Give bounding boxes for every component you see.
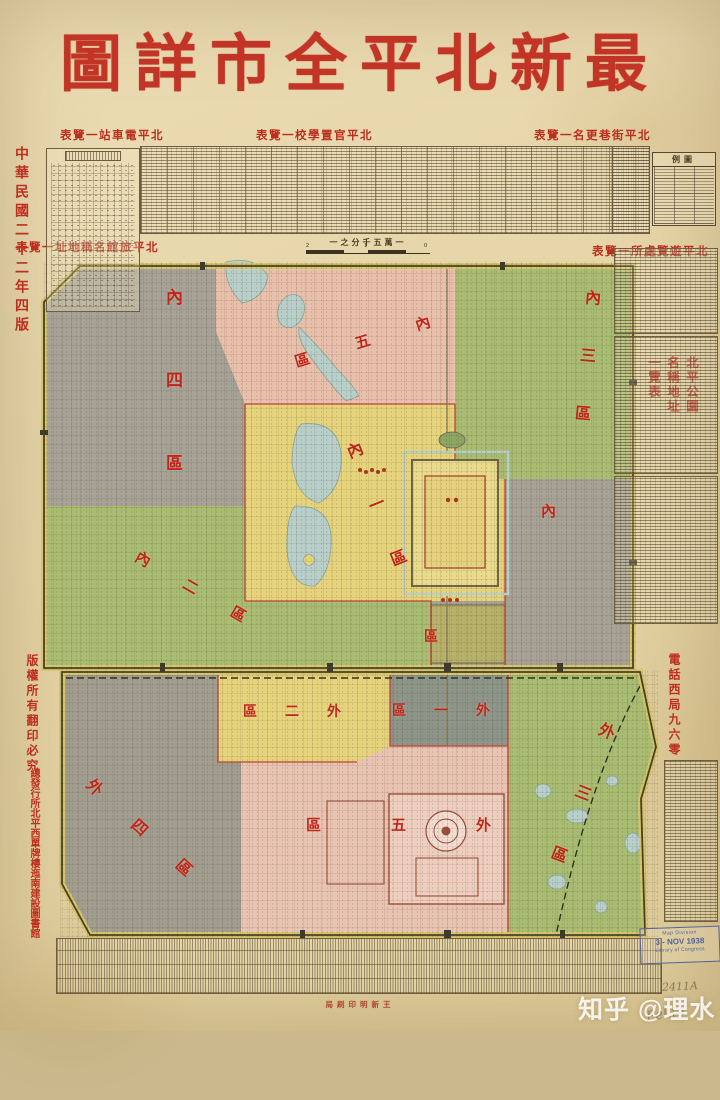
library-stamp: Map Division 3 - NOV 1938 Library of Con… [639, 926, 720, 965]
top-right-table [612, 146, 650, 234]
header-schools-table: 表覽一校學置官平北 [256, 127, 373, 143]
district-label-wai-5: 區五外 [306, 814, 561, 835]
edition-note: 中華民國二十二年四版 [12, 146, 32, 336]
scale-ratio-label: 一之分千五萬一 [306, 237, 430, 248]
scale-tick-0: 0 [424, 243, 427, 249]
zhihu-watermark: 知乎 @理水 [578, 990, 715, 1026]
district-label-nei-4: 內四區 [160, 288, 185, 537]
inset-key-map-drawing [51, 163, 135, 307]
inset-key-map-caption [65, 151, 121, 161]
scale-bar-segment [306, 250, 344, 253]
copyright-note: 版權所有翻印必究 [24, 654, 41, 774]
bottom-tables-strip [56, 938, 662, 994]
header-tram-stops-table: 表覽一站車電平北 [60, 127, 164, 143]
district-label-wai-2: 區二外 [243, 701, 369, 721]
legation-quarter-region [431, 605, 505, 663]
inset-key-map [46, 148, 140, 312]
forbidden-city-inner [425, 476, 485, 568]
district-label-wai-1: 區一外 [392, 700, 518, 720]
district-label-legation-partial: 區 [424, 626, 438, 646]
district-label-nei-6-partial: 內 [541, 500, 556, 521]
legend-symbol-grid [654, 166, 714, 224]
scale-bar [306, 250, 430, 254]
right-margin-table [664, 760, 718, 922]
top-tables-strip [140, 146, 650, 234]
right-margin-table [614, 248, 718, 334]
jingshan-hill [439, 432, 465, 448]
nanhai-island [304, 555, 315, 566]
publisher-note: 總發行所北平西單牌樓迤南建設圖書館 [26, 768, 41, 938]
header-street-renames-table: 表覽一名更巷街平北 [534, 127, 651, 143]
scale-tick-2: 2 [306, 243, 309, 249]
legend-box: 例圖 [652, 152, 716, 226]
stamp-line-3: Library of Congress [641, 946, 719, 955]
right-margin-table [614, 476, 718, 624]
scale-bar-segment [368, 250, 406, 253]
right-margin-table-parks [614, 336, 718, 474]
scale-tick-1: 1 [364, 243, 367, 249]
map-title: 圖詳市全平北新最 [0, 28, 720, 102]
map-sheet: 圖詳市全平北新最 表覽一站車電平北 表覽一校學置官平北 表覽一名更巷街平北 表覽… [0, 0, 720, 1031]
phone-note: 電話西局九六零 [666, 653, 683, 758]
scale-bar-group: 一之分千五萬一 2 1 0 [306, 237, 430, 259]
district-region-nei-3 [455, 266, 633, 479]
